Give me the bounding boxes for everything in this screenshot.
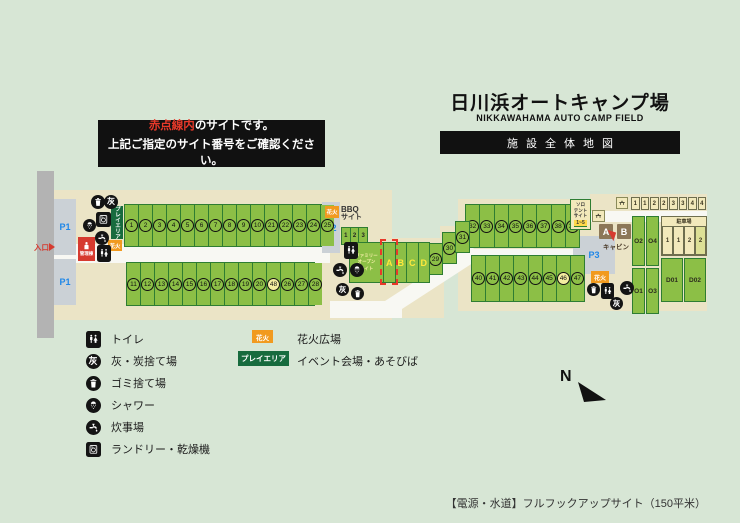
parking-p3-label: P3: [588, 250, 599, 260]
laundry-icon: [96, 212, 111, 227]
legend-label: ゴミ捨て場: [111, 375, 166, 391]
page-title: 日川浜オートキャンプ場: [420, 88, 700, 115]
right-cell-7: 4: [698, 197, 707, 210]
legend-play-badge: プレイエリア: [238, 351, 289, 366]
site-number-37: 37: [537, 220, 550, 233]
right-cell-6: 4: [688, 197, 697, 210]
site-cell-18: 18: [225, 263, 239, 305]
right-cells: 11223344: [631, 197, 706, 210]
site-number-7: 7: [209, 219, 222, 232]
legend-label: シャワー: [111, 397, 155, 413]
legend: トイレ灰灰・炭捨て場ゴミ捨て場シャワー炊事場ランドリー・乾燥機: [85, 328, 210, 460]
bench-icon: [617, 198, 627, 208]
parking-block: 駐車場 1122: [661, 216, 707, 256]
site-number-5: 5: [181, 219, 194, 232]
shower-icon: [86, 398, 101, 413]
legend-label: トイレ: [111, 331, 144, 347]
site-cell-14: 14: [169, 263, 183, 305]
site-number-1: 1: [125, 219, 138, 232]
site-block-O2: O2: [632, 216, 645, 266]
ash-icon: 灰: [104, 195, 118, 209]
row-top: 123456789102122232425: [124, 204, 322, 247]
shower-icon: [350, 263, 364, 277]
d-sites: D01D02: [661, 258, 706, 302]
parking-cell-2: 2: [684, 226, 695, 255]
campground-map-page: 赤点線内のサイトです。 上記ご指定のサイト番号をご確認ください。 日川浜オートキ…: [0, 0, 740, 523]
site-cell-13: 13: [155, 263, 169, 305]
site-cell-19: 19: [239, 263, 253, 305]
parking-p1-lower: P1: [54, 259, 76, 305]
parking-p1-lower-label: P1: [59, 277, 70, 287]
site-number-41: 41: [486, 272, 499, 285]
faucet-icon: [95, 231, 109, 245]
legend-item-shower: シャワー: [85, 394, 210, 416]
site-cell-23: 23: [293, 205, 307, 246]
faucet-icon: [85, 420, 101, 435]
legend-label: 灰・炭捨て場: [111, 353, 177, 369]
row-right-top: 3233343536373839: [465, 204, 580, 248]
site-number-20: 20: [253, 278, 266, 291]
parking-cell-0: 1: [662, 226, 673, 255]
site-number-4: 4: [167, 219, 180, 232]
laundry-icon: [85, 442, 101, 457]
site-number-45: 45: [543, 272, 556, 285]
site-number-9: 9: [237, 219, 250, 232]
site-number-46: 46: [557, 272, 570, 285]
trash-icon: [351, 287, 364, 300]
site-cell-33: 33: [480, 205, 494, 247]
bench-badge-top: [616, 197, 628, 209]
legend-hanabi-badge: 花火: [252, 330, 273, 343]
right-cell-3: 2: [660, 197, 669, 210]
site-cell-47: 47: [571, 256, 584, 301]
site-number-25: 25: [321, 219, 334, 232]
ash-icon: 灰: [86, 354, 101, 369]
bbq-title: BBQ サイト: [341, 205, 362, 222]
map-banner: 施設全体地図: [440, 131, 680, 154]
site-number-15: 15: [183, 278, 196, 291]
legend-label: ランドリー・乾燥機: [111, 441, 210, 457]
ash-icon: 灰: [610, 297, 623, 310]
site-block-O1: O1: [632, 268, 645, 314]
site-number-8: 8: [223, 219, 236, 232]
compass-arrow-icon: [576, 381, 608, 405]
site-cell-44: 44: [529, 256, 543, 301]
site-cell-34: 34: [495, 205, 509, 247]
site-number-6: 6: [195, 219, 208, 232]
faucet-icon: [333, 263, 347, 277]
shower-icon: [85, 398, 101, 413]
site-number-38: 38: [552, 220, 565, 233]
site-cell-10: 10: [251, 205, 265, 246]
site-number-12: 12: [141, 278, 154, 291]
site-number-17: 17: [211, 278, 224, 291]
site-number-47: 47: [571, 272, 584, 285]
admin-building: 管理棟: [78, 237, 95, 261]
site-number-29: 29: [429, 253, 442, 266]
notice-line1: 赤点線内のサイトです。: [98, 118, 325, 134]
site-number-40: 40: [472, 272, 485, 285]
site-number-43: 43: [514, 272, 527, 285]
compass-label: N: [560, 368, 572, 386]
faucet-icon: [620, 281, 634, 295]
o-sites-bottom: O1O3: [632, 268, 659, 314]
notice-box: 赤点線内のサイトです。 上記ご指定のサイト番号をご確認ください。: [98, 120, 325, 167]
site-number-11: 11: [127, 278, 140, 291]
row-bottom: 1112131415161718192048262728: [126, 262, 315, 306]
notice-line1-rest: のサイトです。: [195, 120, 274, 132]
highlight-dashed-box: [380, 239, 398, 285]
site-number-23: 23: [293, 219, 306, 232]
site-number-35: 35: [509, 220, 522, 233]
parking-block-title: 駐車場: [676, 218, 691, 225]
toilet-icon: [601, 283, 614, 299]
site-number-18: 18: [225, 278, 238, 291]
parking-p1-upper-label: P1: [59, 222, 70, 232]
site-number-34: 34: [495, 220, 508, 233]
notice-line2: 上記ご指定のサイト番号をご確認ください。: [98, 137, 325, 169]
entrance-label: 入口: [34, 242, 49, 253]
site-cell-5: 5: [181, 205, 195, 246]
site-number-2: 2: [139, 219, 152, 232]
toilet-icon: [86, 331, 101, 348]
site-cell-12: 12: [141, 263, 155, 305]
site-number-28: 28: [309, 278, 322, 291]
site-number-3: 3: [153, 219, 166, 232]
row-right-bottom: 4041424344454647: [471, 255, 585, 302]
bin-icon: [86, 376, 101, 391]
person-icon: [82, 241, 91, 250]
footer-note: 【電源・水道】フルフックアップサイト（150平米）: [400, 495, 706, 511]
site-cell-31: 31: [455, 221, 470, 253]
bench-icon: [593, 211, 604, 221]
cabin-caption: キャビン: [595, 241, 637, 251]
bbq-title-line2: サイト: [341, 214, 362, 222]
site-number-24: 24: [307, 219, 320, 232]
site-cell-22: 22: [279, 205, 293, 246]
site-cell-2: 2: [139, 205, 153, 246]
site-cell-11: 11: [127, 263, 141, 305]
site-cell-17: 17: [211, 263, 225, 305]
site-number-26: 26: [281, 278, 294, 291]
site-cell-6: 6: [195, 205, 209, 246]
bin-icon: [85, 376, 101, 391]
family-cell-D: D: [419, 243, 430, 282]
site-number-22: 22: [279, 219, 292, 232]
site-cell-48: 48: [267, 263, 281, 305]
admin-label: 管理棟: [80, 251, 94, 257]
trash-icon: [91, 195, 105, 209]
solo-line3: サイト: [574, 213, 588, 218]
legend-play-label: イベント会場・あそびば: [297, 353, 418, 369]
o-sites-top: O2O4: [632, 216, 659, 266]
shower-icon: [83, 219, 96, 232]
right-cell-5: 3: [679, 197, 688, 210]
page-subtitle: NIKKAWAHAMA AUTO CAMP FIELD: [420, 113, 700, 123]
site-cell-26: 26: [281, 263, 295, 305]
site-cell-45: 45: [543, 256, 557, 301]
family-cell-C: C: [407, 243, 419, 282]
site-block-D02: D02: [684, 258, 706, 302]
site-cell-29: 29: [428, 243, 443, 275]
legend-label: 炊事場: [111, 419, 144, 435]
site-cell-9: 9: [237, 205, 251, 246]
family-letter-C: C: [409, 258, 416, 268]
site-block-O3: O3: [646, 268, 659, 314]
site-cell-41: 41: [486, 256, 500, 301]
right-cell-2: 2: [650, 197, 659, 210]
legend-item-faucet: 炊事場: [85, 416, 210, 438]
site-number-31: 31: [456, 231, 469, 244]
hanabi-badge-right: 花火: [591, 271, 609, 283]
site-cell-46: 46: [557, 256, 571, 301]
legend-item-ash: 灰灰・炭捨て場: [85, 350, 210, 372]
site-cell-21: 21: [265, 205, 279, 246]
site-cell-40: 40: [472, 256, 486, 301]
site-cell-37: 37: [537, 205, 551, 247]
bbq-number-2: 2: [353, 233, 356, 239]
hanabi-badge-bbq: 花火: [325, 206, 339, 218]
parking-p1-upper: P1: [54, 199, 76, 255]
parking-cell-1: 1: [673, 226, 684, 255]
faucet-icon: [86, 420, 101, 435]
laundry-icon: [86, 442, 101, 457]
solo-tent-site: ソロ テント サイト 1~5: [570, 199, 591, 230]
ash-icon: 灰: [85, 354, 101, 369]
site-number-13: 13: [155, 278, 168, 291]
toilet-icon: [85, 331, 101, 348]
left-road: [37, 171, 54, 338]
site-cell-7: 7: [209, 205, 223, 246]
site-block-D01: D01: [661, 258, 683, 302]
trash-icon: [587, 283, 600, 296]
site-cell-42: 42: [500, 256, 514, 301]
site-number-33: 33: [480, 220, 493, 233]
site-number-27: 27: [295, 278, 308, 291]
toilet-icon: [97, 245, 111, 262]
site-cell-36: 36: [523, 205, 537, 247]
notice-highlight: 赤点線内: [149, 120, 195, 132]
site-cell-3: 3: [153, 205, 167, 246]
right-cell-1: 1: [641, 197, 650, 210]
site-block-O4: O4: [646, 216, 659, 266]
toilet-icon: [344, 242, 358, 259]
site-cell-8: 8: [223, 205, 237, 246]
solo-range: 1~5: [574, 220, 586, 227]
bbq-number-3: 3: [362, 233, 365, 239]
right-cell-4: 3: [669, 197, 678, 210]
site-number-16: 16: [197, 278, 210, 291]
site-cell-27: 27: [295, 263, 309, 305]
site-number-42: 42: [500, 272, 513, 285]
site-cell-20: 20: [253, 263, 267, 305]
family-letter-D: D: [421, 258, 428, 268]
bbq-title-line1: BBQ: [341, 205, 362, 214]
site-cell-38: 38: [552, 205, 566, 247]
parking-cells: 1122: [662, 226, 706, 255]
legend-item-toilet: トイレ: [85, 328, 210, 350]
right-cell-0: 1: [631, 197, 640, 210]
site-number-21: 21: [265, 219, 278, 232]
entrance-arrow-icon: [49, 243, 55, 251]
site-cell-28: 28: [309, 263, 322, 305]
site-cell-24: 24: [307, 205, 321, 246]
site-cell-15: 15: [183, 263, 197, 305]
legend-hanabi-label: 花火広場: [297, 331, 341, 347]
play-area-label: プレイエリア: [111, 206, 123, 239]
site-cell-35: 35: [509, 205, 523, 247]
parking-cell-3: 2: [695, 226, 706, 255]
site-number-14: 14: [169, 278, 182, 291]
ash-icon: 灰: [336, 283, 349, 296]
bbq-number-1: 1: [344, 233, 347, 239]
site-cell-43: 43: [514, 256, 528, 301]
site-number-48: 48: [267, 278, 280, 291]
site-cell-4: 4: [167, 205, 181, 246]
site-number-36: 36: [523, 220, 536, 233]
site-cell-16: 16: [197, 263, 211, 305]
site-number-19: 19: [239, 278, 252, 291]
site-cell-1: 1: [125, 205, 139, 246]
family-letter-B: B: [398, 258, 405, 268]
site-number-44: 44: [529, 272, 542, 285]
site-number-10: 10: [251, 219, 264, 232]
legend-item-laundry: ランドリー・乾燥機: [85, 438, 210, 460]
legend-item-bin: ゴミ捨て場: [85, 372, 210, 394]
bench-badge-cabin: [592, 210, 605, 222]
cabin-B: B: [617, 224, 631, 239]
